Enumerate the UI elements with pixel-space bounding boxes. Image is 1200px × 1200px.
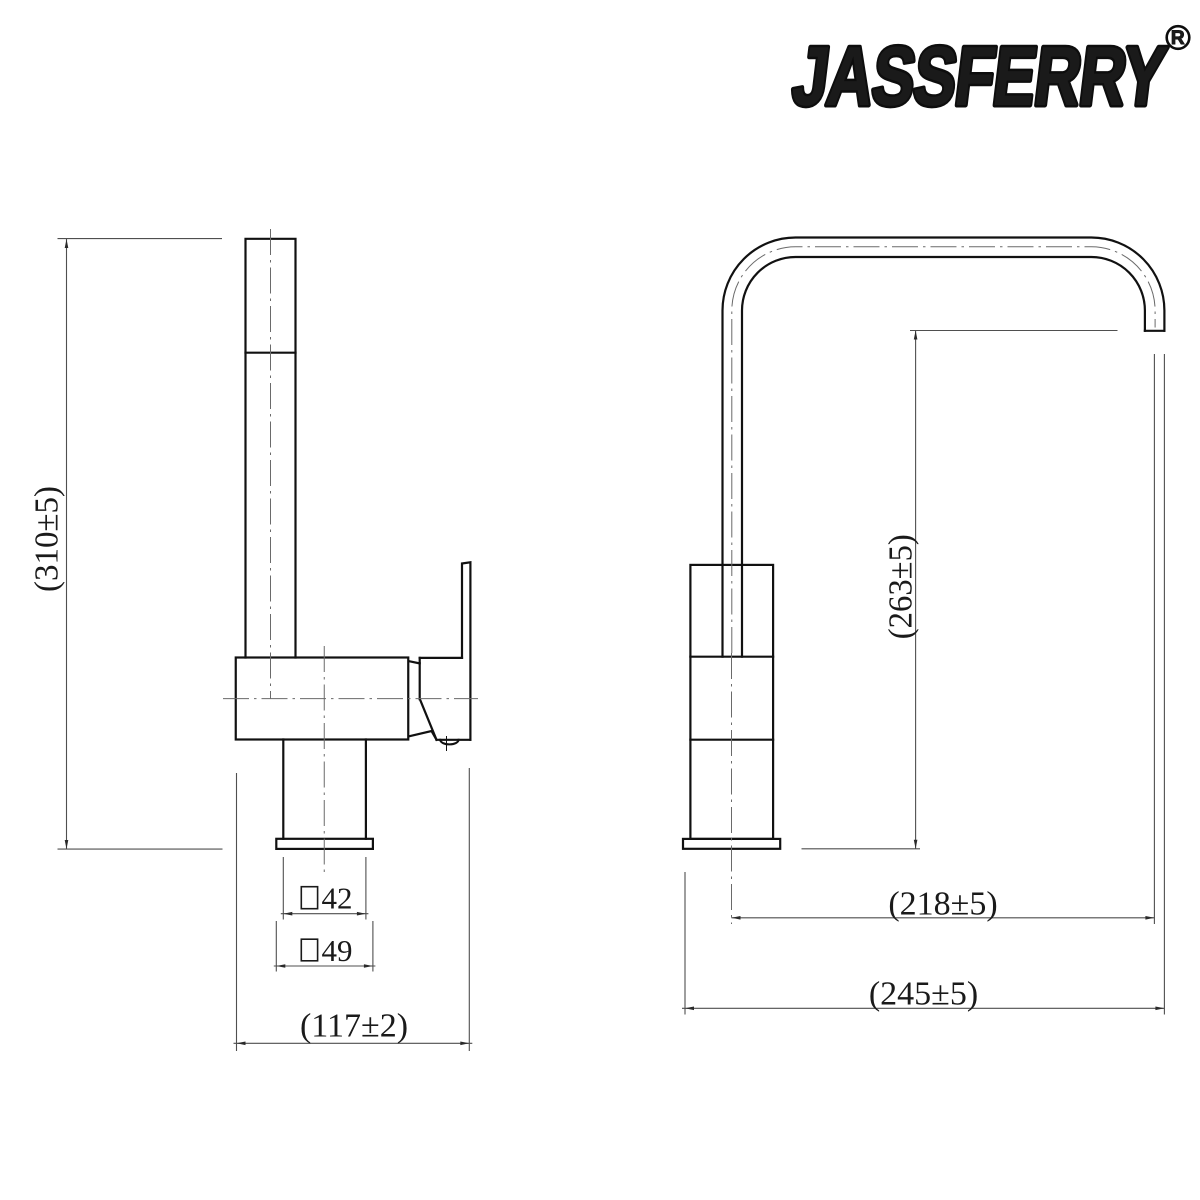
svg-text:49: 49 xyxy=(322,933,353,968)
svg-text:(245±5): (245±5) xyxy=(869,976,978,1013)
svg-text:(263±5): (263±5) xyxy=(883,534,920,639)
svg-text:(117±2): (117±2) xyxy=(300,1008,408,1045)
svg-text:R: R xyxy=(1171,28,1185,49)
svg-text:(310±5): (310±5) xyxy=(29,486,66,592)
svg-text:42: 42 xyxy=(322,880,353,915)
svg-text:(218±5): (218±5) xyxy=(888,886,997,923)
svg-text:JASSFERRY: JASSFERRY xyxy=(788,29,1171,123)
